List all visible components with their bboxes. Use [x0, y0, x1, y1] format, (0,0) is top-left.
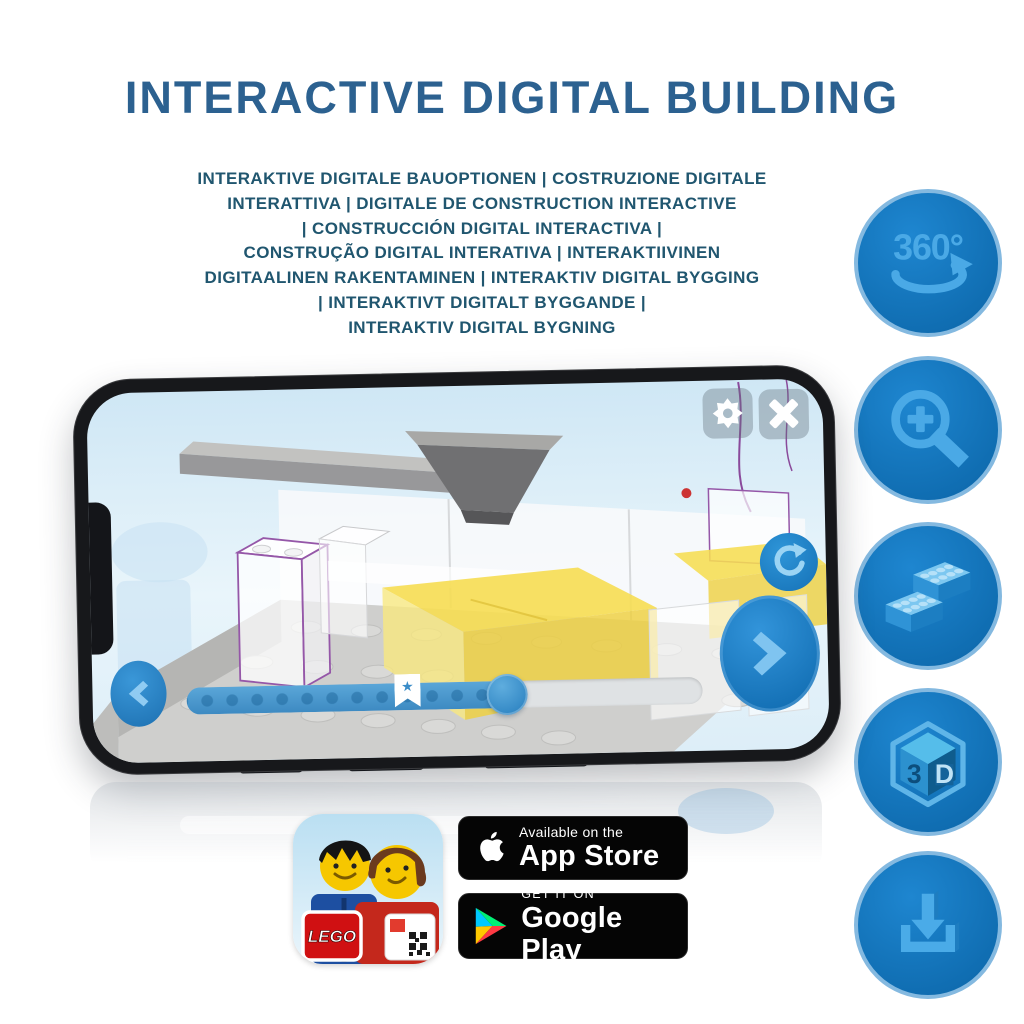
app-store-tagline: Available on the	[519, 824, 659, 840]
lego-app-artwork: LEGO	[293, 814, 443, 964]
3d-cube-icon: 3 D	[875, 709, 981, 815]
page-title: INTERACTIVE DIGITAL BUILDING	[0, 72, 1024, 124]
chevron-left-icon	[127, 679, 150, 707]
settings-button[interactable]	[702, 388, 753, 439]
cube-3-label: 3	[907, 759, 922, 789]
phone-notch	[87, 502, 114, 654]
360-rotation-icon: 360°	[872, 207, 984, 319]
3d-view-badge: 3 D	[854, 688, 1002, 836]
subtitle-line: | INTERAKTIVT DIGITALT BYGGANDE |	[132, 291, 832, 316]
download-icon	[876, 873, 980, 977]
rotate-reset-icon	[768, 542, 809, 583]
app-store-badge[interactable]: Available on the App Store	[458, 816, 688, 880]
google-play-tagline: GET IT ON	[521, 886, 675, 902]
subtitle-line: | CONSTRUCCIÓN DIGITAL INTERACTIVA |	[132, 217, 832, 242]
subtitle-line: DIGITAALINEN RAKENTAMINEN | INTERAKTIV D…	[132, 266, 832, 291]
multilingual-subtitle: INTERAKTIVE DIGITALE BAUOPTIONEN | COSTR…	[132, 167, 832, 341]
lego-app-icon: LEGO	[293, 814, 443, 964]
google-play-name: Google Play	[521, 902, 675, 966]
lego-digital-building-graphic: INTERACTIVE DIGITAL BUILDING INTERAKTIVE…	[0, 0, 1024, 1024]
lego-logo-text: LEGO	[308, 927, 356, 946]
apple-icon	[475, 829, 507, 867]
subtitle-line: INTERATTIVA | DIGITALE DE CONSTRUCTION I…	[132, 192, 832, 217]
lego-logo: LEGO	[303, 912, 361, 960]
cube-d-label: D	[935, 759, 954, 789]
app-store-name: App Store	[519, 840, 659, 872]
brick-badge	[854, 522, 1002, 670]
phone-frame: ★	[72, 364, 842, 776]
close-button[interactable]	[758, 389, 809, 440]
subtitle-line: INTERAKTIVE DIGITALE BAUOPTIONEN | COSTR…	[132, 167, 832, 192]
chevron-right-icon	[750, 629, 789, 678]
building-brick-icon	[875, 543, 981, 649]
zoom-in-badge	[854, 356, 1002, 504]
download-badge	[854, 851, 1002, 999]
360-rotation-badge: 360°	[854, 189, 1002, 337]
subtitle-line: CONSTRUÇÃO DIGITAL INTERATIVA | INTERAKT…	[132, 241, 832, 266]
close-icon	[758, 389, 809, 440]
subtitle-line: INTERAKTIV DIGITAL BYGNING	[132, 316, 832, 341]
phone-mockup: ★	[72, 364, 842, 776]
google-play-icon	[473, 904, 509, 948]
google-play-badge[interactable]: GET IT ON Google Play	[458, 893, 688, 959]
zoom-in-icon	[874, 376, 982, 484]
gear-icon	[710, 396, 745, 431]
app-screen: ★	[86, 378, 830, 763]
phone-reflection	[90, 782, 822, 877]
